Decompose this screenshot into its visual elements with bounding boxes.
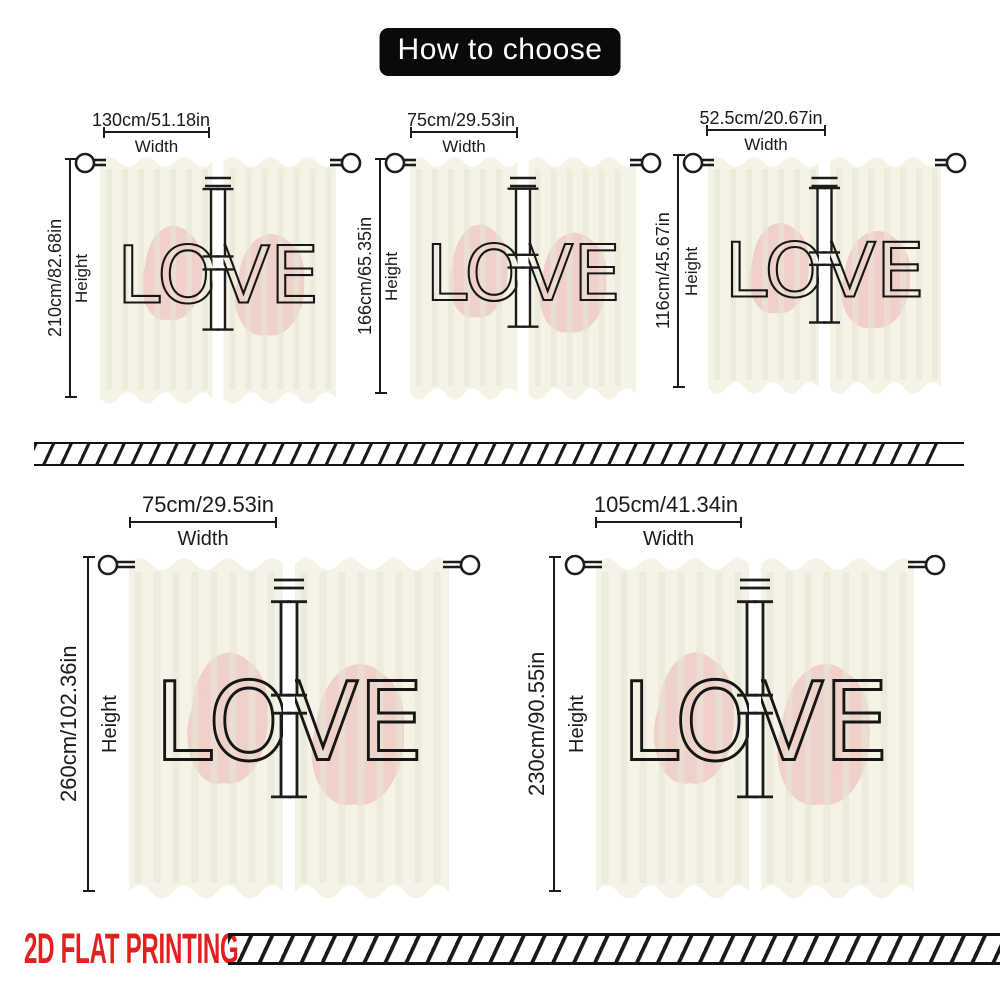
height-dimension-line xyxy=(87,556,89,892)
size-guide-infographic: How to choose 130cm/51.18in Width 210cm/… xyxy=(0,0,1000,1000)
curtain-graphic: LOVE xyxy=(97,548,481,904)
footer-print-label: 2D FLAT PRINTING xyxy=(24,928,238,971)
height-value: 260cm/102.36in xyxy=(56,556,82,892)
width-dimension-line xyxy=(595,521,742,523)
width-value: 75cm/29.53in xyxy=(118,492,298,518)
width-dimension-line xyxy=(129,521,277,523)
hatched-divider-top xyxy=(34,442,964,466)
width-dimension-line xyxy=(410,131,518,133)
curtain-graphic: LOVE xyxy=(564,548,946,904)
panel-gap xyxy=(283,552,295,899)
page-title: How to choose xyxy=(380,28,621,76)
width-value: 75cm/29.53in xyxy=(376,110,546,131)
width-dimension-line xyxy=(706,129,826,131)
width-value: 52.5cm/20.67in xyxy=(676,108,846,129)
curtain-graphic: LOVE xyxy=(682,148,967,398)
height-value: 230cm/90.55in xyxy=(524,556,550,892)
hatched-divider-bottom xyxy=(228,933,1000,965)
panel-gap xyxy=(749,552,761,899)
height-value: 210cm/82.68in xyxy=(44,158,66,398)
width-value: 130cm/51.18in xyxy=(66,110,236,131)
height-dimension-line xyxy=(553,556,555,892)
curtain-graphic: LOVE xyxy=(74,148,362,408)
curtain-graphic: LOVE xyxy=(384,148,662,404)
width-value: 105cm/41.34in xyxy=(576,492,756,518)
height-dimension-line xyxy=(379,158,381,394)
height-value: 116cm/45.67in xyxy=(652,154,674,388)
width-dimension-line xyxy=(103,131,210,133)
height-dimension-line xyxy=(69,158,71,398)
height-dimension-line xyxy=(677,154,679,388)
height-value: 166cm/65.35in xyxy=(354,158,376,394)
